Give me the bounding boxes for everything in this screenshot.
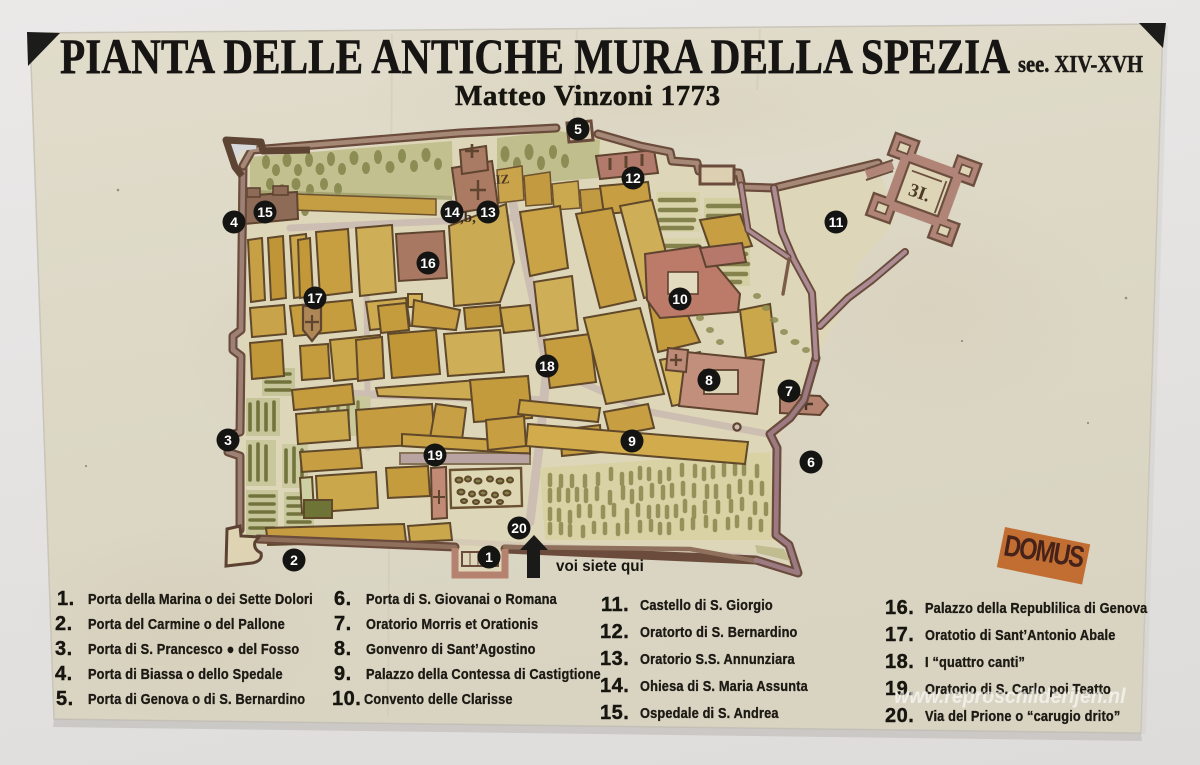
svg-text:9: 9 (628, 433, 636, 449)
svg-text:12: 12 (625, 170, 641, 186)
svg-text:14: 14 (444, 204, 460, 220)
svg-text:1: 1 (485, 549, 493, 565)
svg-text:5: 5 (574, 121, 582, 137)
svg-text:voi siete qui: voi siete qui (556, 558, 644, 575)
svg-text:13: 13 (480, 204, 496, 220)
svg-text:15: 15 (257, 204, 273, 220)
svg-text:7: 7 (785, 383, 793, 399)
svg-text:16: 16 (420, 255, 436, 271)
svg-text:20: 20 (511, 520, 527, 536)
svg-text:2: 2 (290, 552, 298, 568)
svg-text:17: 17 (307, 290, 323, 306)
svg-text:19: 19 (427, 447, 443, 463)
svg-text:18: 18 (539, 358, 555, 374)
svg-text:8: 8 (705, 372, 713, 388)
svg-text:IZ: IZ (495, 171, 510, 187)
svg-text:3: 3 (224, 432, 232, 448)
svg-text:6: 6 (807, 454, 815, 470)
svg-text:10: 10 (672, 291, 688, 307)
svg-text:4: 4 (230, 214, 238, 230)
svg-text:11: 11 (829, 214, 844, 230)
